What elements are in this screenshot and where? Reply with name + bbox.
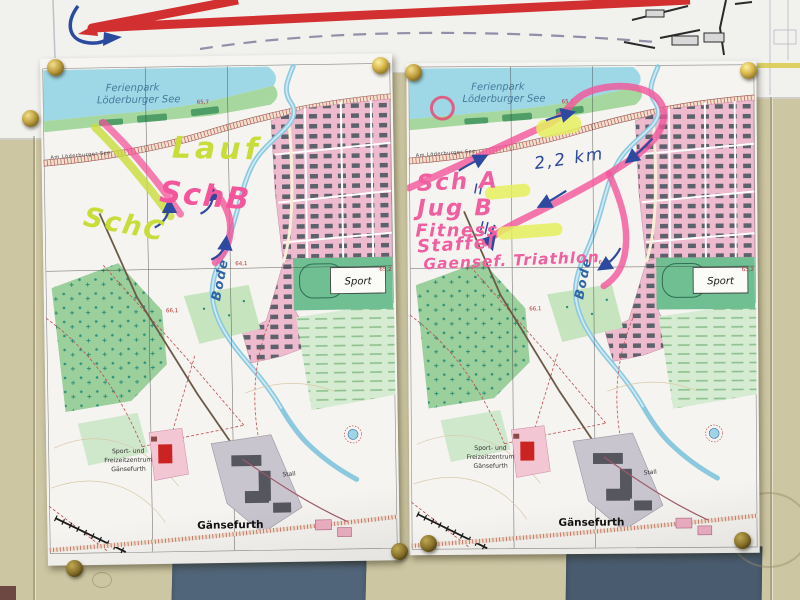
sch-a-label: Sch A [416, 167, 499, 196]
pushpin-right-sheet-top-right [740, 62, 757, 79]
wall-corner-shadow [0, 586, 16, 600]
jug-b-label: Jug B [413, 195, 494, 222]
pushpin-left-sheet-bottom-left [66, 560, 83, 577]
pushpin-left-sheet-top-right [372, 57, 389, 74]
wall-groove-left [33, 136, 35, 600]
red-route-line [78, 0, 690, 36]
photo-scene: Ferienpark Löderburger See Am Löderburge… [0, 0, 800, 600]
wall-small-mark [92, 572, 112, 588]
pushpin-left-sheet-bottom-right [391, 543, 408, 560]
course-map-sheet-left: Lauf SchB SchC [40, 53, 400, 565]
lauf-label: Lauf [172, 131, 262, 168]
pushpin-left-sheet-top-left [47, 59, 64, 76]
dashed-line [200, 33, 655, 49]
street-sketch [624, 0, 752, 55]
paper-fold-line [53, 0, 55, 58]
technical-drawing-corner [757, 0, 800, 95]
pushpin-right-sheet-bottom-left [420, 535, 437, 552]
pushpin-right-sheet-bottom-right [734, 532, 751, 549]
pushpin-background [22, 110, 39, 127]
course-map-sheet-right: 2,2 km Sch A Jug B Fitness Staffel Gaens… [406, 61, 759, 555]
pushpin-right-sheet-top-left [405, 64, 422, 81]
